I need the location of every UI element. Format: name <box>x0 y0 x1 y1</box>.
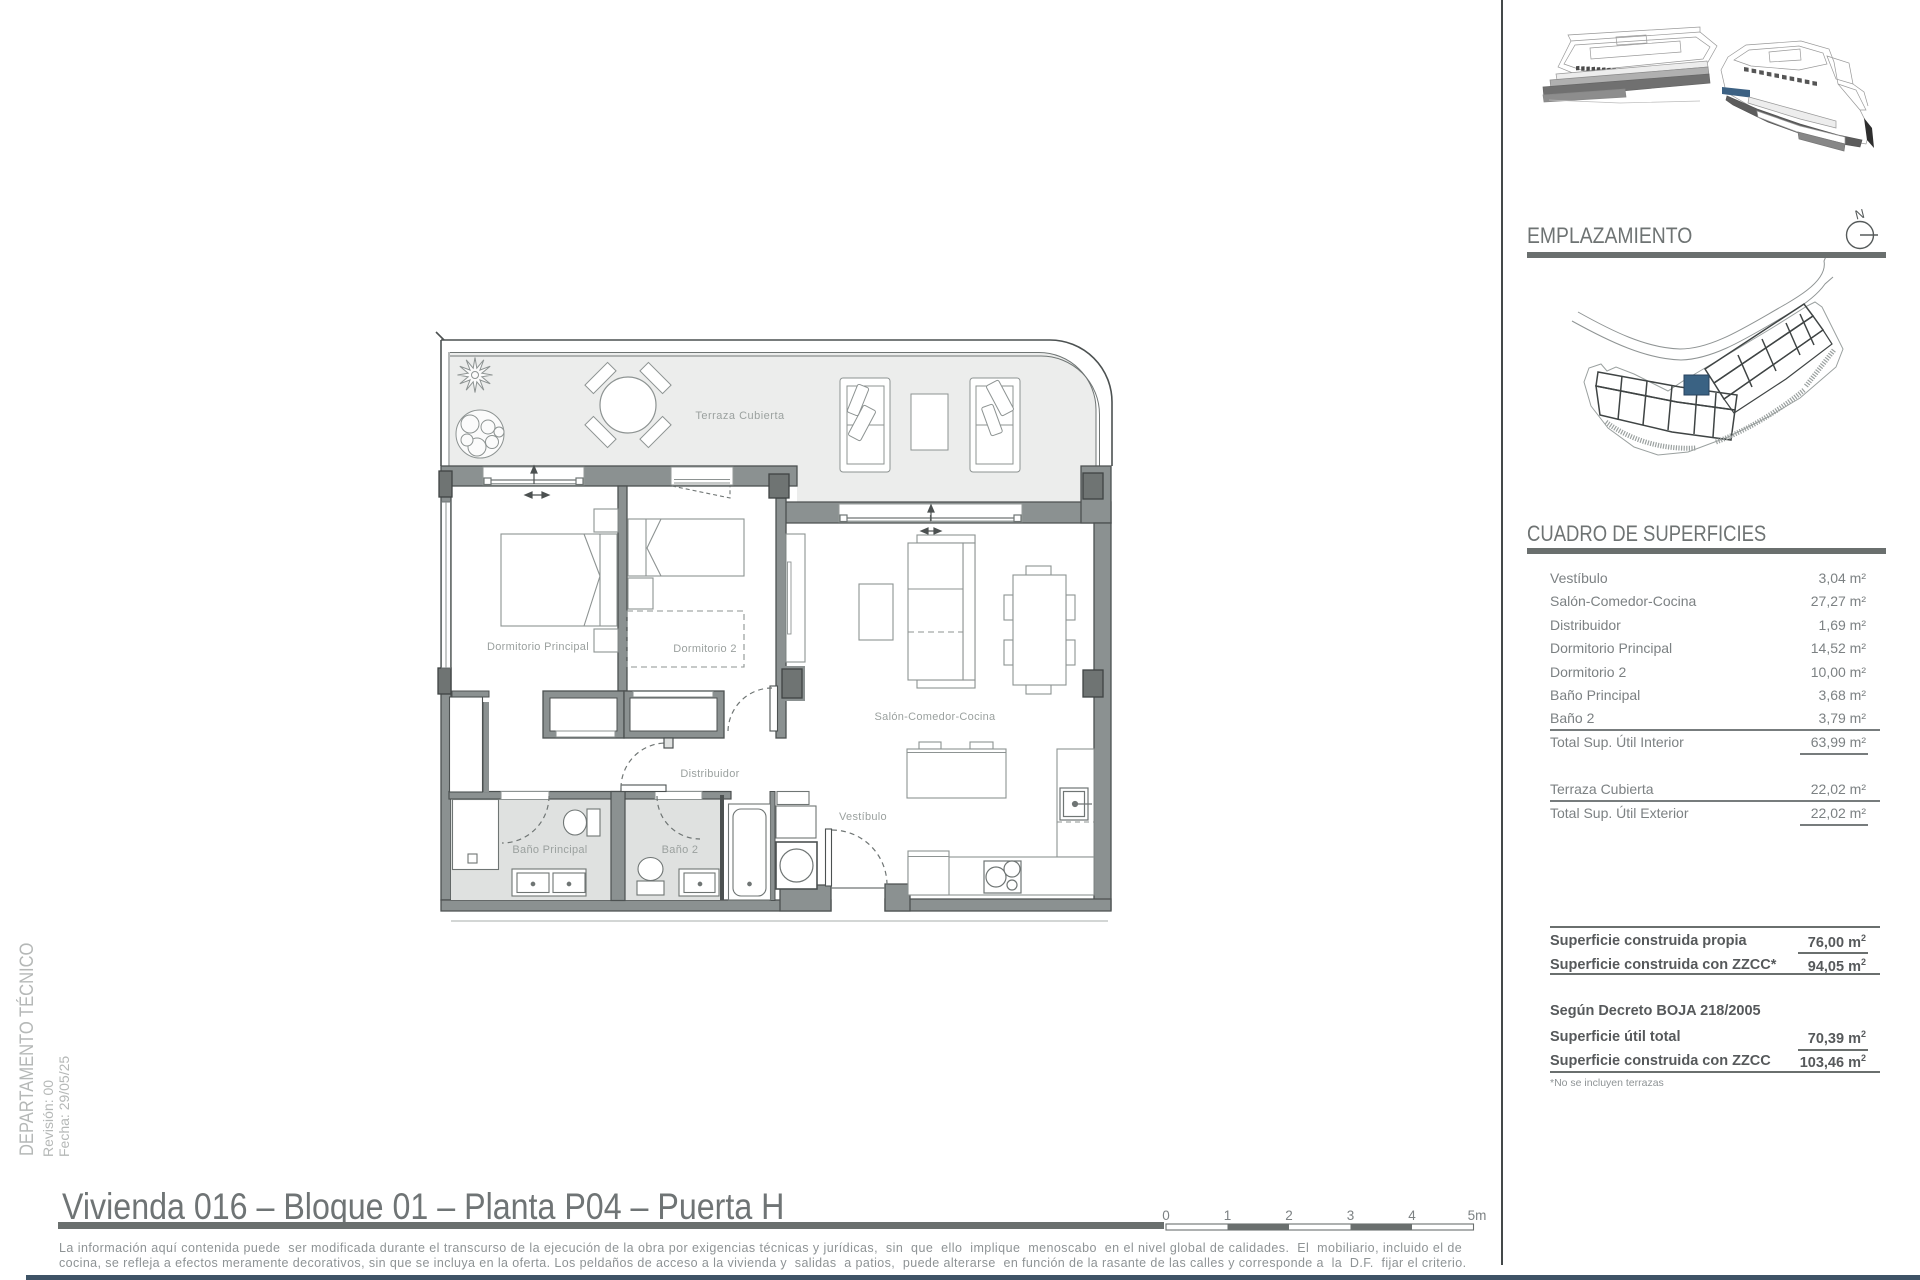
svg-text:Dormitorio Principal: Dormitorio Principal <box>487 641 589 653</box>
svg-text:Dormitorio 2: Dormitorio 2 <box>673 643 737 655</box>
svg-text:0: 0 <box>1162 1208 1170 1223</box>
svg-text:Baño Principal: Baño Principal <box>512 844 587 856</box>
svg-text:N: N <box>1853 206 1866 223</box>
svg-text:5m: 5m <box>1468 1208 1487 1223</box>
svg-text:Distribuidor: Distribuidor <box>680 768 739 780</box>
svg-text:3: 3 <box>1347 1208 1355 1223</box>
svg-text:Terraza Cubierta: Terraza Cubierta <box>695 410 785 422</box>
svg-text:Baño 2: Baño 2 <box>662 844 699 856</box>
svg-text:2: 2 <box>1285 1208 1293 1223</box>
svg-text:Salón-Comedor-Cocina: Salón-Comedor-Cocina <box>875 711 997 723</box>
svg-text:Vestíbulo: Vestíbulo <box>839 811 887 823</box>
svg-text:4: 4 <box>1408 1208 1416 1223</box>
svg-text:1: 1 <box>1224 1208 1232 1223</box>
